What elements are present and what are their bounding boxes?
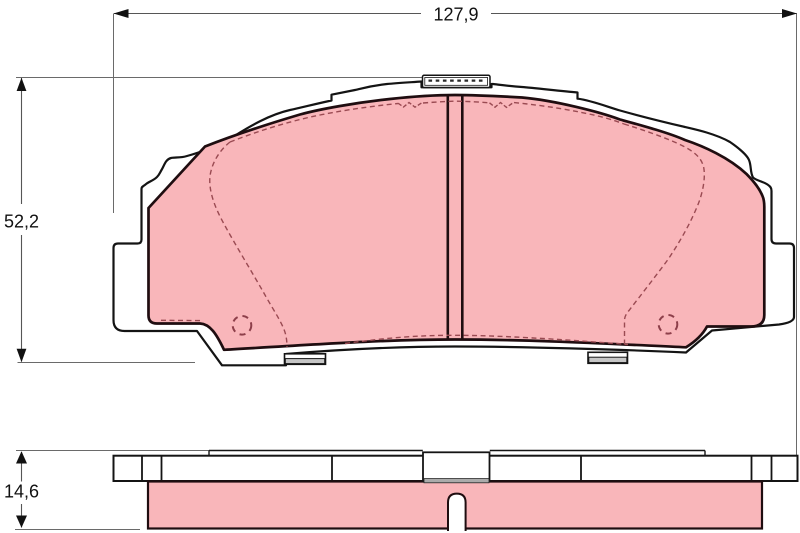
svg-text:127,9: 127,9 [433, 4, 478, 24]
svg-text:14,6: 14,6 [4, 482, 39, 502]
svg-text:52,2: 52,2 [4, 211, 39, 231]
